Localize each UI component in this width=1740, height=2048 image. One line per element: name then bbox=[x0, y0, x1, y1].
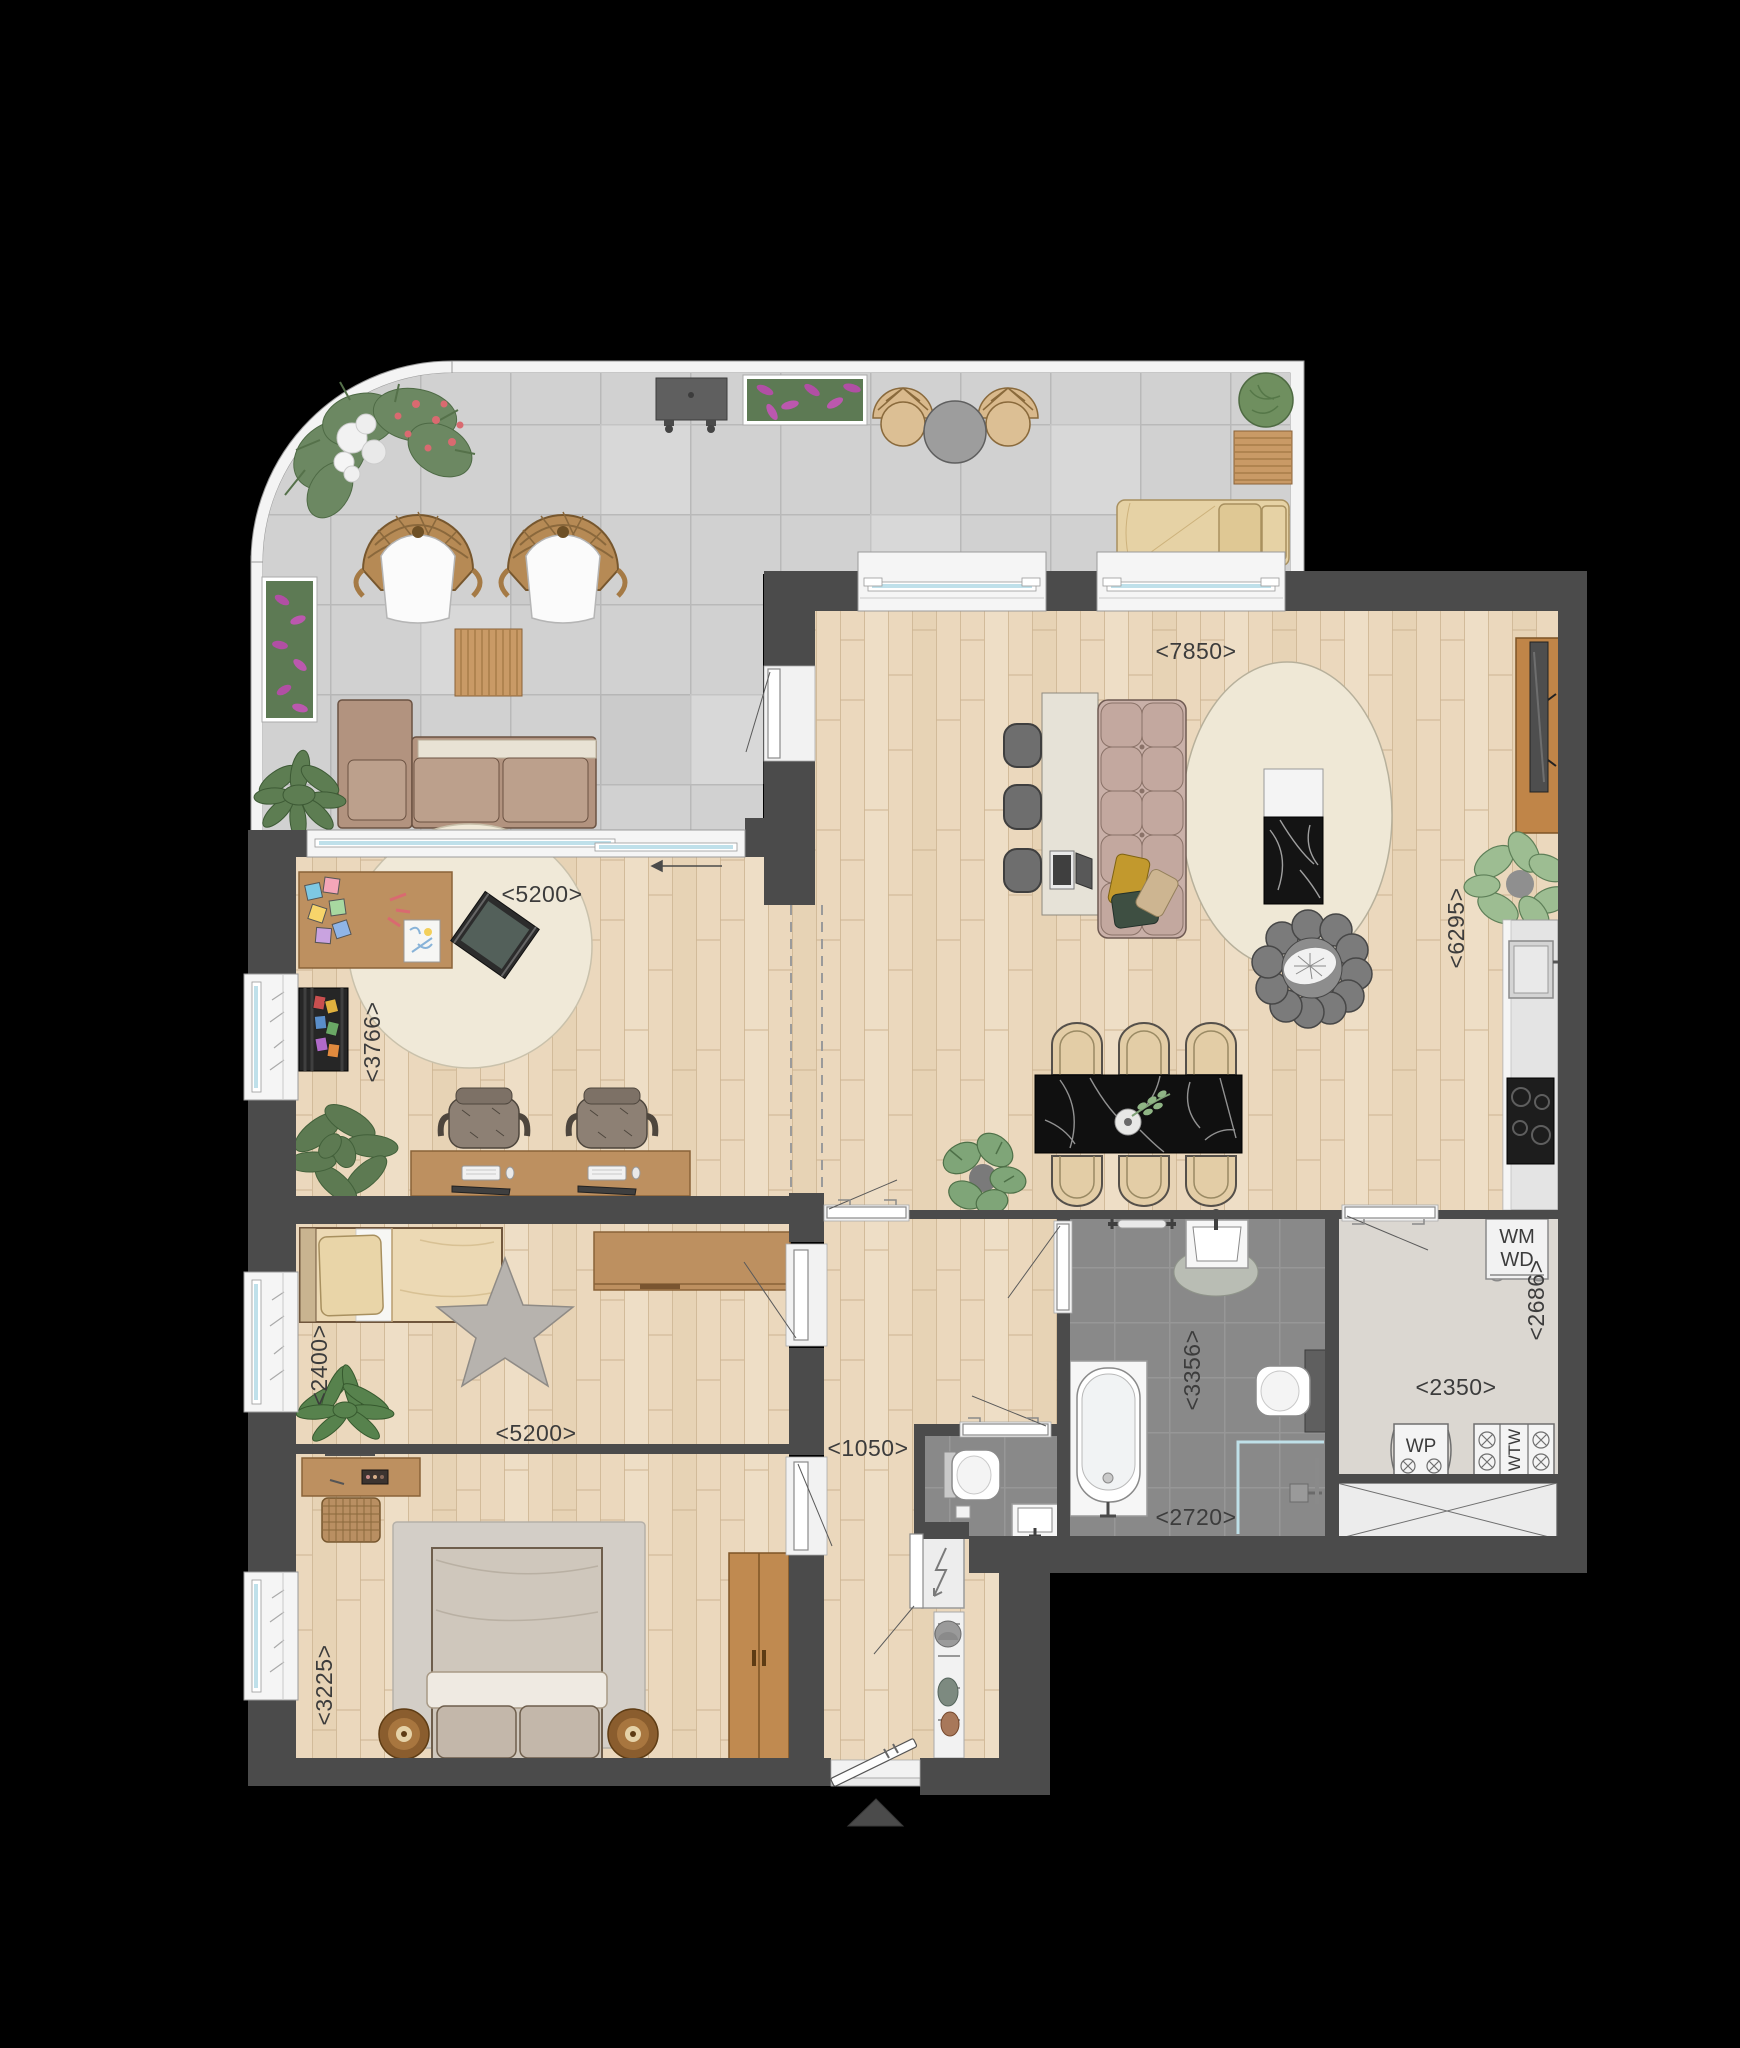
svg-text:<3356>: <3356> bbox=[1179, 1329, 1205, 1410]
svg-text:WM: WM bbox=[1499, 1226, 1535, 1248]
svg-text:<2720>: <2720> bbox=[1155, 1504, 1236, 1530]
svg-text:<2400>: <2400> bbox=[306, 1324, 332, 1405]
svg-text:<5200>: <5200> bbox=[501, 881, 582, 907]
svg-text:<2350>: <2350> bbox=[1415, 1374, 1496, 1400]
svg-text:<6295>: <6295> bbox=[1443, 887, 1469, 968]
svg-text:<7850>: <7850> bbox=[1155, 638, 1236, 664]
svg-text:<3766>: <3766> bbox=[359, 1001, 385, 1082]
svg-text:<2686>: <2686> bbox=[1523, 1259, 1549, 1340]
svg-text:<1050>: <1050> bbox=[827, 1435, 908, 1461]
svg-text:<5200>: <5200> bbox=[495, 1420, 576, 1446]
svg-text:<3225>: <3225> bbox=[311, 1644, 337, 1725]
svg-text:WP: WP bbox=[1406, 1436, 1437, 1457]
svg-text:WTW: WTW bbox=[1505, 1429, 1524, 1471]
